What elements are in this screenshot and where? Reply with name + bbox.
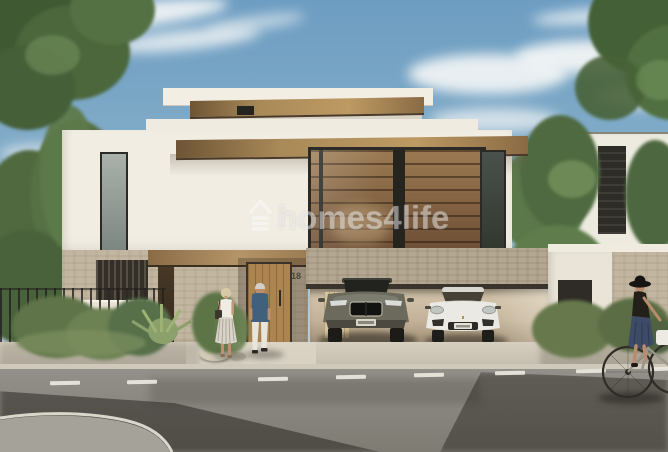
road-shadow xyxy=(150,378,480,404)
watermark: homes4life xyxy=(247,192,507,244)
lane-marking xyxy=(50,381,80,386)
neighbor-window xyxy=(598,146,626,234)
tree-foliage xyxy=(575,55,645,120)
cyclist xyxy=(592,268,668,402)
man-walking xyxy=(240,282,280,358)
agave-plant xyxy=(134,300,188,354)
roof-small-window xyxy=(237,106,254,115)
window-narrow-left xyxy=(100,152,128,252)
lane-marking xyxy=(495,371,525,376)
dark-suv xyxy=(316,276,416,346)
tree-foliage xyxy=(548,160,596,198)
grass xyxy=(16,330,146,356)
lane-marking xyxy=(336,375,366,380)
white-suv xyxy=(422,286,504,344)
gate-parapet-cap xyxy=(548,244,668,252)
villa-exterior-render: 18 xyxy=(0,0,668,452)
homes4life-house-icon xyxy=(247,196,274,236)
woman-walking xyxy=(208,286,244,360)
watermark-text: homes4life xyxy=(277,198,449,238)
driveway-apron xyxy=(0,404,190,452)
lane-marking xyxy=(127,380,157,385)
lane-marking xyxy=(414,373,444,378)
tree-foliage xyxy=(25,35,80,75)
house-number: 18 xyxy=(291,271,301,281)
lane-marking xyxy=(258,377,288,382)
